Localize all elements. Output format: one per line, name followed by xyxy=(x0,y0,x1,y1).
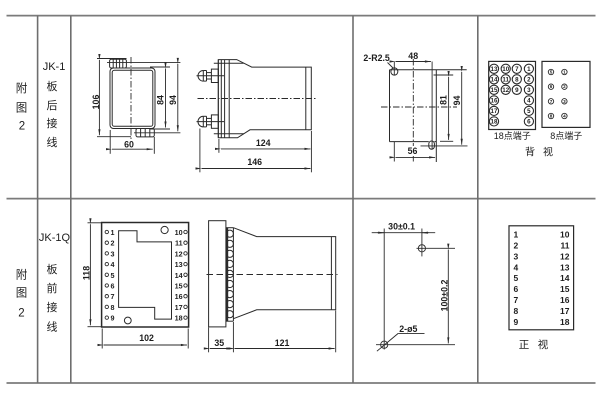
svg-text:视: 视 xyxy=(538,338,549,351)
svg-text:17: 17 xyxy=(560,306,570,316)
svg-text:JK-1: JK-1 xyxy=(43,61,66,73)
svg-text:6: 6 xyxy=(550,84,553,89)
svg-text:9: 9 xyxy=(111,314,115,323)
svg-text:11: 11 xyxy=(561,241,570,251)
svg-text:16: 16 xyxy=(560,295,570,305)
svg-text:13: 13 xyxy=(491,66,498,73)
svg-text:5: 5 xyxy=(550,70,553,75)
svg-text:1: 1 xyxy=(563,70,566,75)
svg-text:8: 8 xyxy=(515,77,519,84)
svg-text:94: 94 xyxy=(168,95,178,105)
svg-text:2: 2 xyxy=(18,308,24,320)
svg-text:12: 12 xyxy=(560,251,570,261)
svg-text:18: 18 xyxy=(491,119,498,126)
svg-text:84: 84 xyxy=(155,95,165,105)
svg-text:15: 15 xyxy=(175,282,183,291)
svg-text:121: 121 xyxy=(275,338,290,348)
svg-text:13: 13 xyxy=(560,262,570,272)
svg-text:4: 4 xyxy=(563,114,566,119)
svg-text:16: 16 xyxy=(175,292,183,301)
svg-text:图: 图 xyxy=(16,287,28,300)
svg-text:10: 10 xyxy=(175,228,183,237)
svg-text:8: 8 xyxy=(514,306,519,316)
svg-text:7: 7 xyxy=(550,99,553,104)
svg-text:7: 7 xyxy=(514,295,519,305)
svg-text:附: 附 xyxy=(16,268,28,282)
svg-text:板: 板 xyxy=(47,262,58,276)
svg-text:3: 3 xyxy=(111,249,115,258)
svg-text:102: 102 xyxy=(139,333,154,343)
svg-text:8点端子: 8点端子 xyxy=(550,130,582,141)
svg-text:16: 16 xyxy=(491,98,498,105)
svg-text:11: 11 xyxy=(175,239,183,248)
svg-text:146: 146 xyxy=(247,157,262,167)
svg-text:后: 后 xyxy=(47,99,58,112)
svg-text:56: 56 xyxy=(408,146,418,156)
svg-text:106: 106 xyxy=(91,95,101,110)
svg-text:4: 4 xyxy=(527,98,531,105)
svg-text:4: 4 xyxy=(111,260,115,269)
svg-text:10: 10 xyxy=(560,230,570,240)
svg-text:17: 17 xyxy=(175,303,183,312)
svg-text:17: 17 xyxy=(491,108,498,115)
svg-text:5: 5 xyxy=(111,271,115,280)
svg-text:6: 6 xyxy=(111,282,115,291)
svg-text:2: 2 xyxy=(19,121,25,133)
svg-text:2-ø5: 2-ø5 xyxy=(399,324,417,334)
svg-text:11: 11 xyxy=(502,77,509,84)
svg-text:1: 1 xyxy=(527,66,531,73)
svg-text:接: 接 xyxy=(47,117,58,130)
svg-text:13: 13 xyxy=(175,260,183,269)
svg-text:12: 12 xyxy=(175,249,183,258)
svg-text:5: 5 xyxy=(527,108,531,115)
svg-text:2: 2 xyxy=(563,84,566,89)
svg-text:6: 6 xyxy=(527,119,531,126)
svg-text:48: 48 xyxy=(408,51,418,61)
svg-text:3: 3 xyxy=(563,99,566,104)
svg-text:100±0.2: 100±0.2 xyxy=(439,280,449,312)
svg-text:正: 正 xyxy=(519,339,530,351)
svg-text:5: 5 xyxy=(514,273,519,283)
svg-text:118: 118 xyxy=(82,266,92,280)
svg-text:94: 94 xyxy=(452,96,462,106)
svg-text:30±0.1: 30±0.1 xyxy=(388,221,415,231)
svg-text:7: 7 xyxy=(111,292,115,301)
svg-text:1: 1 xyxy=(514,230,519,240)
svg-text:视: 视 xyxy=(543,146,553,159)
svg-text:15: 15 xyxy=(560,284,570,294)
svg-text:前: 前 xyxy=(47,281,58,295)
svg-text:14: 14 xyxy=(560,273,570,283)
svg-text:7: 7 xyxy=(515,66,519,73)
svg-text:背: 背 xyxy=(525,146,535,159)
svg-text:附: 附 xyxy=(16,81,28,95)
svg-text:60: 60 xyxy=(124,139,134,149)
svg-text:14: 14 xyxy=(491,77,498,84)
svg-text:18: 18 xyxy=(560,317,570,327)
svg-text:1: 1 xyxy=(111,228,115,237)
svg-text:2: 2 xyxy=(527,77,531,84)
svg-text:9: 9 xyxy=(515,87,519,94)
svg-text:3: 3 xyxy=(527,87,531,94)
svg-text:15: 15 xyxy=(491,87,498,94)
svg-text:18点端子: 18点端子 xyxy=(494,130,531,141)
svg-text:8: 8 xyxy=(111,303,115,312)
svg-text:10: 10 xyxy=(502,66,509,73)
svg-text:4: 4 xyxy=(514,262,519,272)
svg-text:2-R2.5: 2-R2.5 xyxy=(363,53,390,63)
svg-text:2: 2 xyxy=(111,239,115,248)
svg-text:JK-1Q: JK-1Q xyxy=(39,232,71,244)
svg-text:2: 2 xyxy=(514,241,519,251)
svg-text:图: 图 xyxy=(16,102,28,115)
svg-text:18: 18 xyxy=(175,314,183,323)
svg-text:接: 接 xyxy=(47,301,58,314)
svg-text:板: 板 xyxy=(47,79,58,93)
svg-text:14: 14 xyxy=(175,271,183,280)
svg-text:9: 9 xyxy=(514,317,519,327)
svg-text:12: 12 xyxy=(502,87,509,94)
svg-text:6: 6 xyxy=(514,284,519,294)
svg-text:线: 线 xyxy=(47,319,58,333)
svg-text:81: 81 xyxy=(439,95,449,105)
svg-text:124: 124 xyxy=(256,138,271,148)
svg-text:35: 35 xyxy=(214,338,224,348)
svg-text:3: 3 xyxy=(514,251,519,261)
svg-text:8: 8 xyxy=(550,114,553,119)
svg-text:线: 线 xyxy=(47,135,58,149)
